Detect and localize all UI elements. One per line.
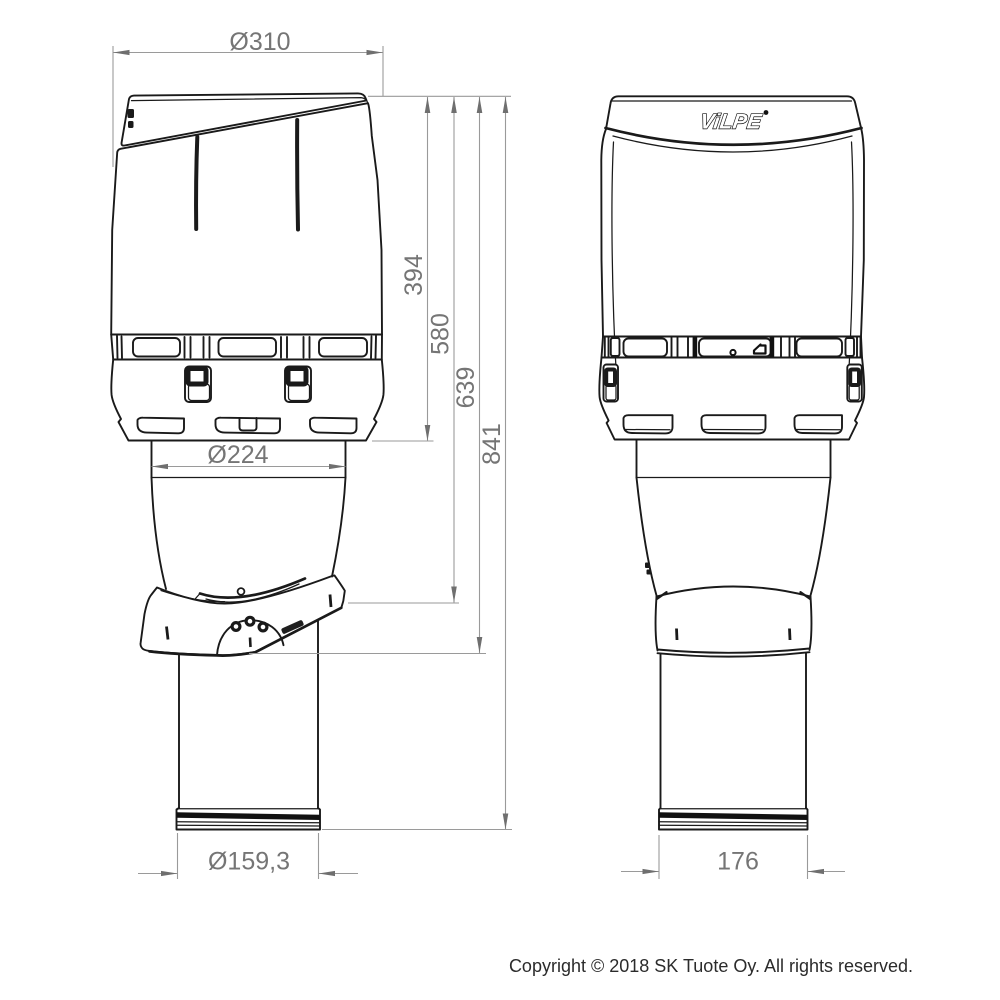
svg-text:841: 841 bbox=[478, 423, 506, 465]
svg-text:ViLPE: ViLPE bbox=[699, 111, 764, 134]
svg-text:394: 394 bbox=[400, 254, 428, 296]
svg-text:176: 176 bbox=[717, 848, 759, 876]
svg-text:Copyright © 2018 SK Tuote Oy.: Copyright © 2018 SK Tuote Oy. All rights… bbox=[509, 956, 913, 976]
svg-text:Ø224: Ø224 bbox=[207, 441, 268, 469]
svg-text:Ø310: Ø310 bbox=[229, 28, 290, 56]
svg-text:639: 639 bbox=[452, 367, 480, 409]
svg-text:580: 580 bbox=[427, 313, 455, 355]
svg-text:Ø159,3: Ø159,3 bbox=[208, 848, 290, 876]
